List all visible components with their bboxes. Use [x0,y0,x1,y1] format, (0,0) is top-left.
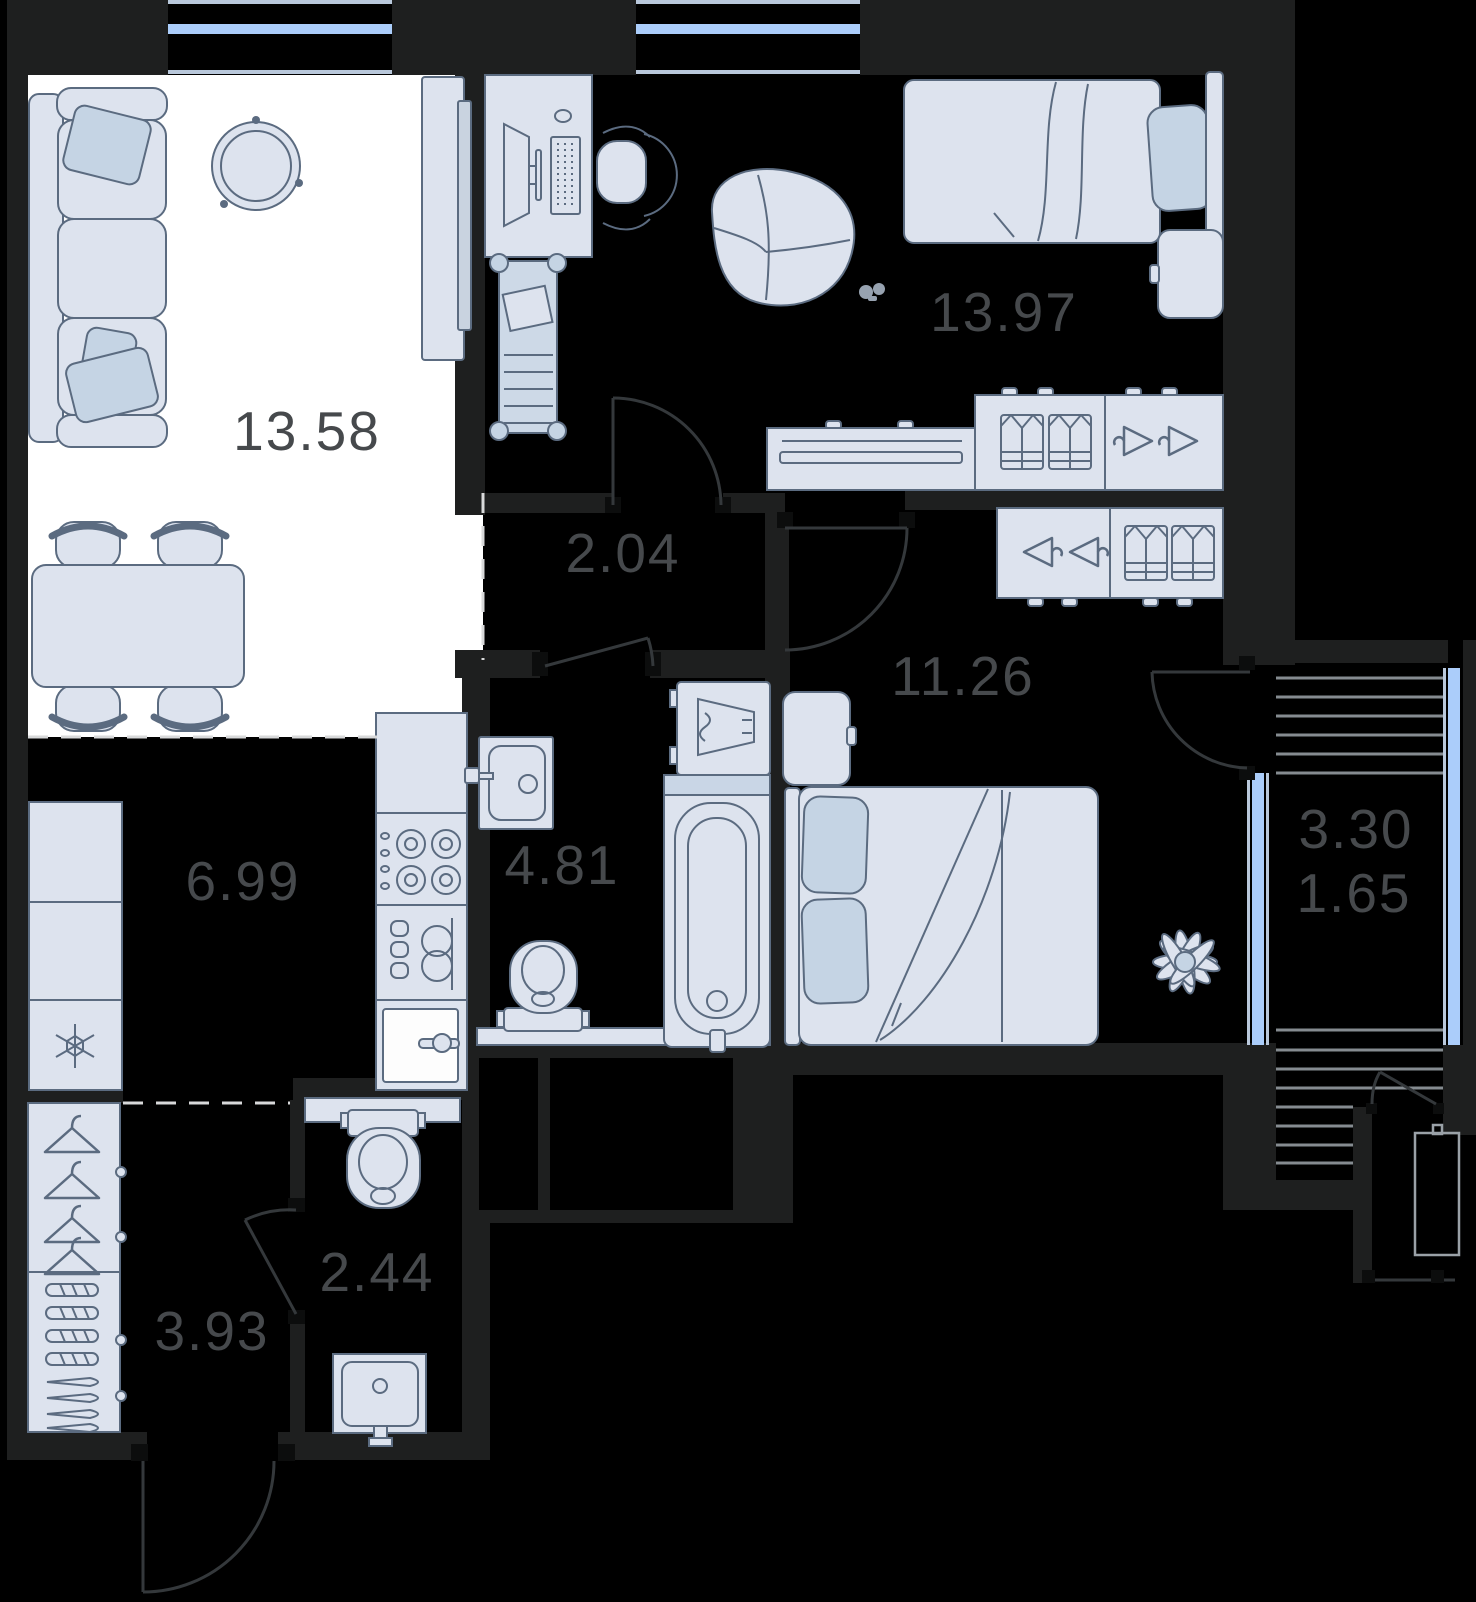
dining-chair [52,522,124,568]
wardrobe-right [997,508,1223,606]
dresser [767,421,975,490]
bathtub [664,775,770,1052]
dining-chair [154,685,226,731]
label-kitchen: 6.99 [185,850,300,912]
bathroom-sink [465,737,553,829]
headboard [1206,72,1223,246]
wall-hook [116,1335,126,1345]
wardrobe-top [975,388,1223,490]
kitchen-sink [383,1009,459,1082]
dining-chair [52,685,124,731]
pillow [1146,104,1213,212]
balcony-glazing-right [1443,668,1460,1045]
pillow [801,796,868,894]
nightstand [783,692,856,785]
label-living: 13.58 [233,400,381,462]
entry-wardrobe [28,1103,126,1432]
desk [485,75,592,257]
dining-table [32,565,244,687]
label-bedroom-right: 11.26 [891,645,1035,707]
sofa [29,88,167,447]
wall-hook [116,1232,126,1242]
label-bedroom-top: 13.97 [930,281,1078,343]
kitchen-counter-left [29,802,122,1090]
double-bed [785,787,1098,1045]
pillow [801,898,869,1004]
floor-plan: 13.58 13.97 2.04 11.26 6.99 4.81 3.30 1.… [0,0,1476,1602]
mouse [555,110,571,122]
kitchen-counter-right [376,713,467,1090]
tv-console [422,77,471,360]
wall-hook [116,1167,126,1177]
label-entry-hall: 3.93 [154,1300,269,1362]
wall-hook [116,1391,126,1401]
bean-bag [712,169,854,305]
label-wc: 2.44 [319,1241,434,1303]
shelf-unit [490,254,566,440]
monitor [504,124,529,226]
label-balcony-total: 3.30 [1298,798,1413,860]
headboard [785,788,800,1045]
label-bathroom: 4.81 [504,834,619,896]
tv-screen [458,101,471,330]
wc-sink [333,1354,426,1446]
washing-machine [670,682,770,775]
toilet [341,1110,425,1208]
label-balcony-reduced: 1.65 [1296,862,1411,924]
nightstand [1150,230,1223,318]
book [503,286,553,331]
dining-chair [154,522,226,568]
label-corridor: 2.04 [565,522,680,584]
